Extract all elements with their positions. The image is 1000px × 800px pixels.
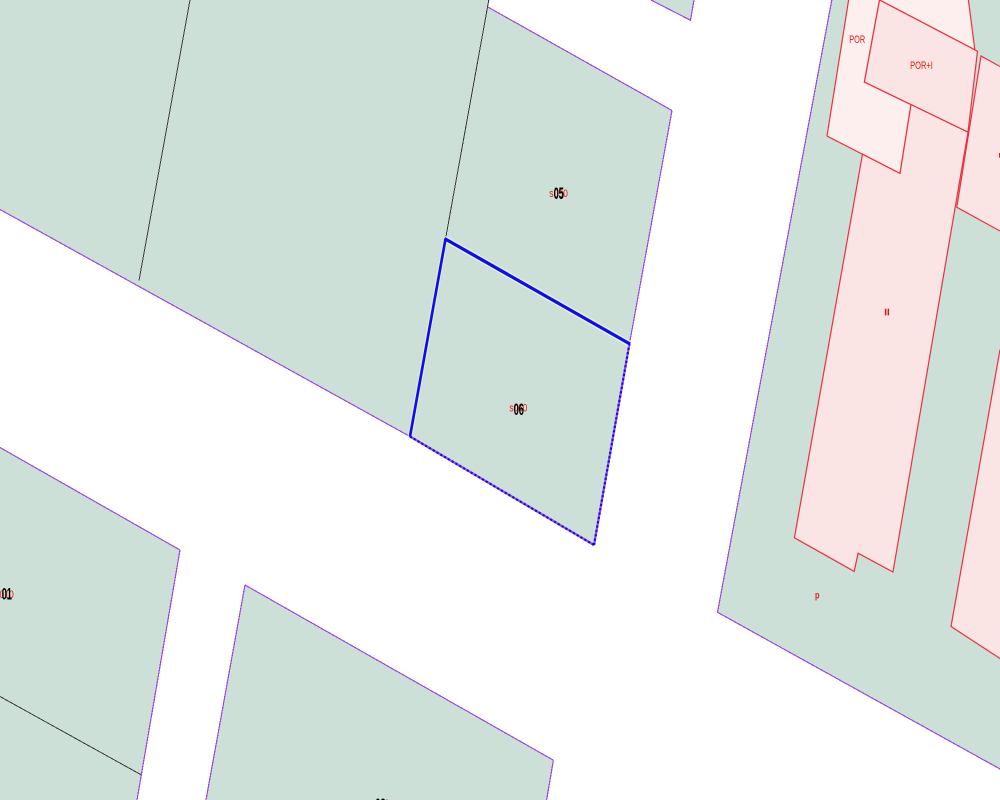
svg-text:p: p (815, 589, 820, 601)
svg-text:01: 01 (2, 585, 12, 604)
svg-text:06: 06 (514, 400, 524, 419)
svg-text:POR: POR (849, 34, 865, 47)
svg-text:03: 03 (375, 795, 385, 800)
svg-text:05: 05 (554, 184, 564, 203)
svg-text:POR+I: POR+I (910, 59, 933, 72)
